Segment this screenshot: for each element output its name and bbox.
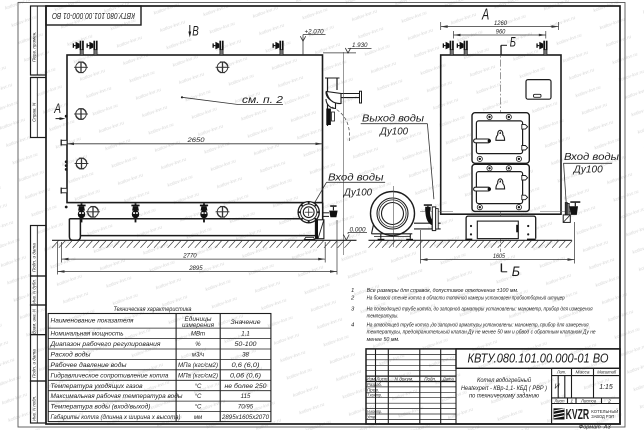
svg-text:Изм: Изм	[366, 376, 375, 382]
svg-text:Наименование показателя: Наименование показателя	[51, 318, 135, 325]
svg-text:по техническому заданию: по техническому заданию	[469, 392, 539, 399]
svg-text:N докум.: N докум.	[395, 376, 414, 382]
svg-text:1,1: 1,1	[241, 331, 249, 338]
svg-text:Б: Б	[510, 35, 516, 50]
svg-text:50-100: 50-100	[235, 341, 258, 348]
svg-text:Утв.: Утв.	[367, 414, 376, 420]
svg-text:Значение: Значение	[231, 319, 262, 326]
svg-text:%: %	[195, 341, 201, 348]
svg-text:Диапазон рабочего регулировани: Диапазон рабочего регулирования	[49, 341, 161, 348]
svg-text:1:15: 1:15	[599, 384, 613, 391]
svg-text:2: 2	[607, 399, 611, 405]
svg-text:2895х1605х2070: 2895х1605х2070	[221, 414, 270, 421]
svg-text:Температура воды (вход/выход): Температура воды (вход/выход)	[51, 404, 151, 411]
svg-text:Ду100: Ду100	[573, 165, 603, 176]
svg-text:2895: 2895	[188, 265, 203, 272]
svg-text:мм: мм	[194, 414, 203, 421]
svg-text:°С: °С	[195, 393, 202, 400]
svg-text:менее 50 мм.: менее 50 мм.	[367, 337, 400, 343]
svg-text:Подп.: Подп.	[424, 376, 436, 382]
svg-text:Формат: Формат	[579, 425, 601, 430]
svg-text:115: 115	[241, 393, 251, 400]
svg-text:На боковой стенке котла в обла: На боковой стенке котла в области топочн…	[367, 295, 566, 302]
svg-text:Масштаб: Масштаб	[597, 370, 616, 376]
svg-text:Лист: Лист	[376, 376, 388, 382]
svg-text:КВТУ.080.101.00.000-01 ВО: КВТУ.080.101.00.000-01 ВО	[468, 352, 609, 366]
svg-text:измерения: измерения	[182, 322, 215, 329]
svg-text:Ду100: Ду100	[343, 187, 372, 198]
svg-text:38: 38	[242, 352, 249, 359]
svg-text:Котел водогрейный: Котел водогрейный	[477, 377, 532, 384]
svg-text:Подп. и дата: Подп. и дата	[32, 243, 37, 272]
svg-text:Техническая характеристика: Техническая характеристика	[114, 306, 192, 313]
svg-text:Номинальная мощность: Номинальная мощность	[51, 331, 124, 338]
svg-text:Габариты котла (длинна х ширин: Габариты котла (длинна х ширина х высота…	[51, 414, 181, 421]
svg-text:Температура уходящих газов: Температура уходящих газов	[51, 383, 143, 390]
svg-text:1260: 1260	[494, 21, 508, 27]
svg-text:ЗАВОД РЭП: ЗАВОД РЭП	[591, 414, 614, 419]
svg-text:Взам. инв. N: Взам. инв. N	[32, 308, 37, 334]
svg-text:Рабочее давление воды: Рабочее давление воды	[51, 362, 128, 369]
svg-text:1: 1	[570, 399, 573, 405]
svg-text:1.930: 1.930	[352, 42, 368, 49]
svg-text:2770: 2770	[182, 252, 197, 259]
svg-text:Разраб.: Разраб.	[367, 382, 382, 388]
svg-text:Вход воды: Вход воды	[328, 172, 384, 183]
svg-text:Инв. N дубл.: Инв. N дубл.	[32, 279, 37, 304]
svg-text:см. п. 2: см. п. 2	[242, 95, 284, 106]
svg-text:Лит.: Лит.	[556, 370, 566, 376]
svg-text:А: А	[481, 6, 489, 23]
svg-text:На подводящей трубе котла, д: На подводящей трубе котла, до запорной а…	[367, 305, 594, 312]
svg-text:Дата: Дата	[442, 376, 454, 382]
svg-text:м3/ч: м3/ч	[192, 352, 205, 359]
svg-text:70/95: 70/95	[238, 404, 254, 411]
svg-text:Справ. N: Справ. N	[32, 102, 37, 122]
svg-text:Вход воды: Вход воды	[564, 152, 620, 163]
svg-text:Масса: Масса	[576, 370, 590, 376]
svg-text:МПа (кгс/см2): МПа (кгс/см2)	[178, 362, 218, 369]
svg-text:МПа (кгс/см2): МПа (кгс/см2)	[178, 372, 218, 379]
svg-text:960: 960	[496, 29, 506, 35]
svg-text:А3: А3	[603, 425, 612, 430]
svg-text:Листов: Листов	[580, 399, 596, 405]
svg-text:Т.контр.: Т.контр.	[367, 393, 382, 399]
svg-text:°С: °С	[195, 383, 202, 390]
svg-text:Ду100: Ду100	[379, 127, 408, 138]
svg-text:КВТУ.080.101.00.000-01 ВО: КВТУ.080.101.00.000-01 ВО	[52, 11, 135, 21]
svg-text:А: А	[53, 101, 61, 117]
svg-text:Расход воды: Расход воды	[51, 352, 92, 359]
svg-text:Все размеры для справок, допус: Все размеры для справок, допустимое откл…	[367, 288, 519, 294]
svg-text:0,6 (6,0): 0,6 (6,0)	[232, 362, 260, 369]
svg-text:не более 250: не более 250	[225, 383, 268, 390]
svg-text:Максимальная рабочая температу: Максимальная рабочая температура воды	[51, 393, 184, 400]
svg-text:Heatexpert - КВр-1,1- КБД ( РВ: Heatexpert - КВр-1,1- КБД ( РВР )	[461, 385, 547, 392]
svg-text:2650: 2650	[186, 137, 205, 144]
svg-text:2: 2	[350, 296, 355, 302]
svg-text:Н.контр.: Н.контр.	[367, 409, 382, 415]
svg-text:температуры.: температуры.	[367, 314, 399, 320]
svg-text:МВт: МВт	[191, 331, 205, 338]
svg-text:Пров.: Пров.	[367, 387, 379, 393]
svg-text:KVZR: KVZR	[566, 407, 590, 423]
svg-text:0,06 (0,6): 0,06 (0,6)	[230, 372, 261, 379]
svg-text:Инв. N подл.: Инв. N подл.	[32, 396, 37, 421]
svg-text:Гидравлическое сопротивление к: Гидравлическое сопротивление котла	[51, 372, 170, 379]
svg-text:В: В	[192, 23, 199, 39]
svg-text:Лист: Лист	[554, 399, 565, 405]
svg-text:Перв. примен.: Перв. примен.	[32, 31, 37, 62]
svg-text:°С: °С	[195, 404, 202, 411]
svg-text:Выход воды: Выход воды	[362, 114, 425, 125]
svg-text:Б: Б	[512, 263, 521, 279]
svg-text:1: 1	[351, 288, 354, 294]
svg-text:+2.070: +2.070	[305, 28, 325, 35]
svg-text:Подп. и дата: Подп. и дата	[32, 349, 37, 378]
svg-text:1605: 1605	[493, 254, 506, 260]
svg-text:температуры, предохранительный: температуры, предохранительный клапан Ду…	[367, 329, 597, 336]
svg-text:На отводящей трубе котла ,до з: На отводящей трубе котла ,до запорной ар…	[367, 321, 590, 328]
